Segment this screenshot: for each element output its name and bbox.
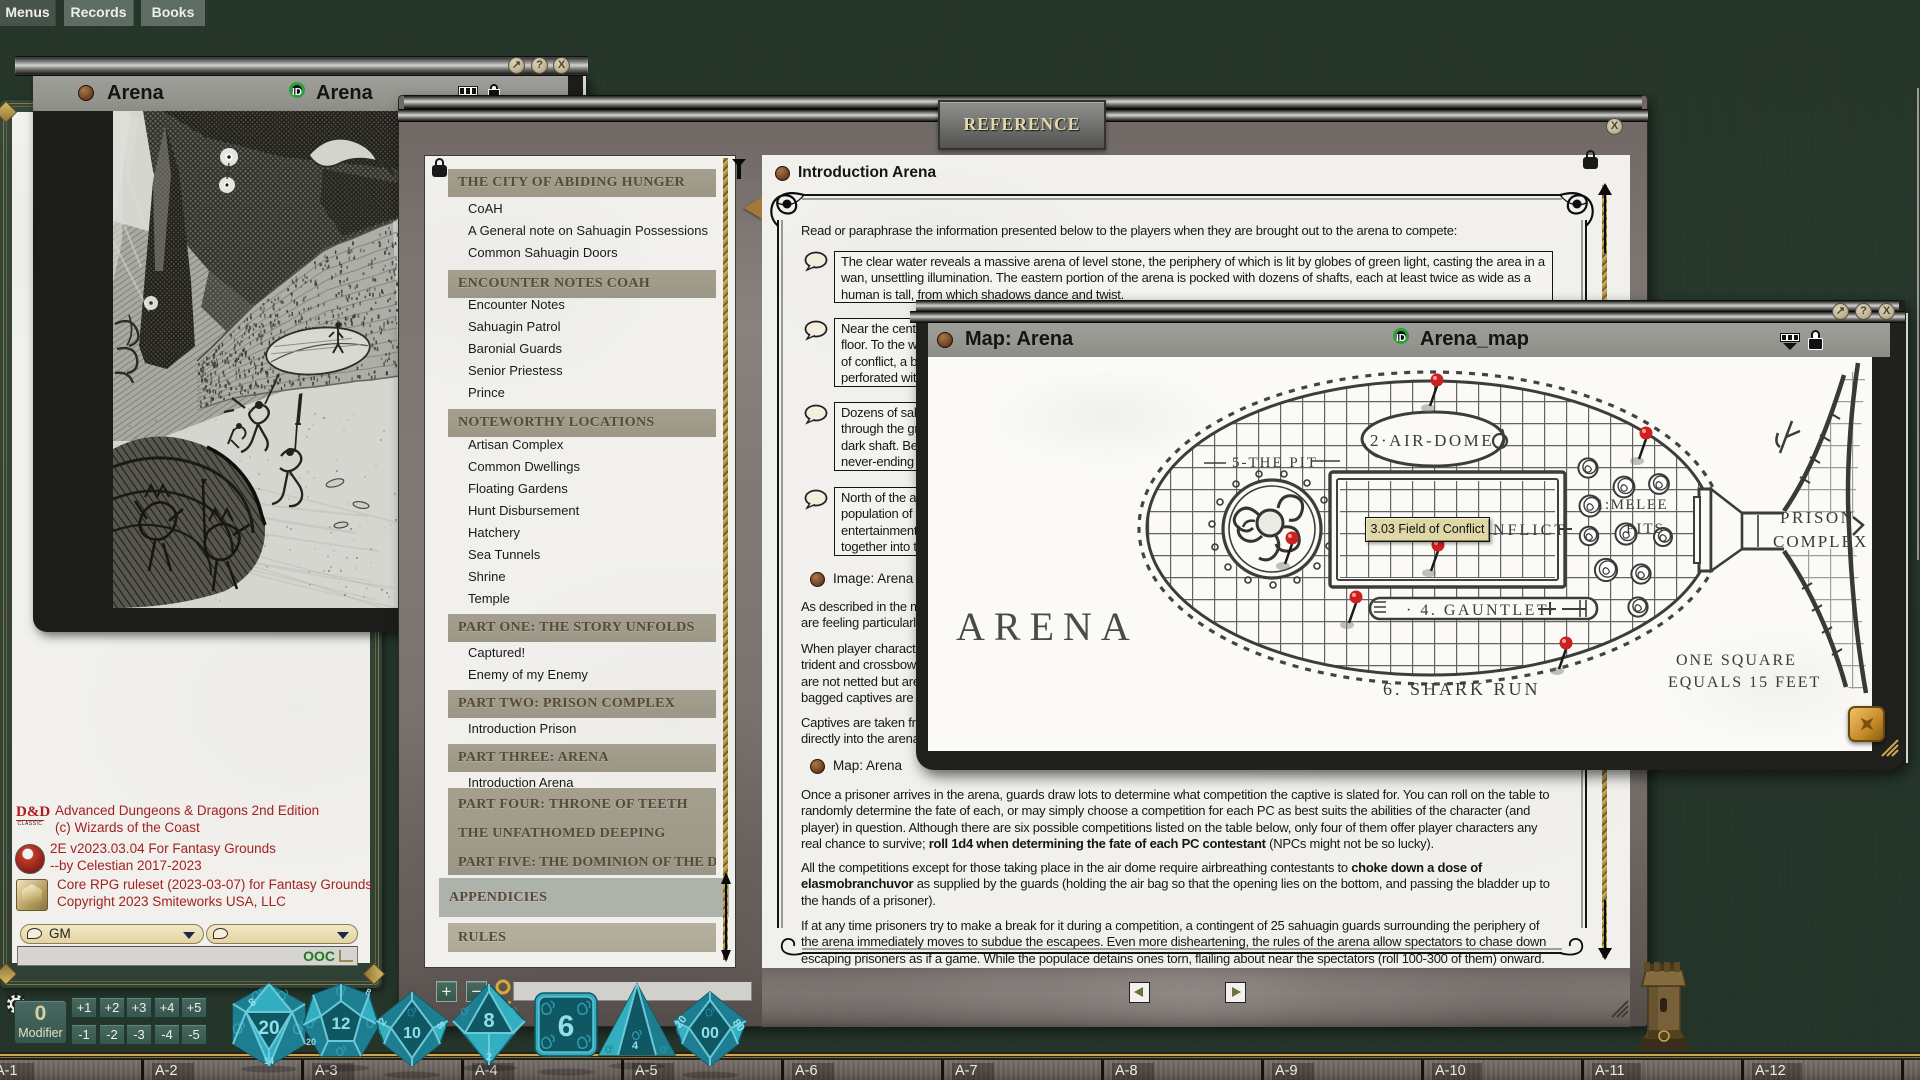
svg-text:ARENA: ARENA [956,604,1139,649]
svg-text:5-THE PIT: 5-THE PIT [1232,455,1318,471]
svg-text:· 4. GAUNTLET·: · 4. GAUNTLET· [1406,602,1557,619]
svg-text:14: 14 [264,1056,274,1066]
svg-text:12: 12 [332,1014,351,1033]
svg-text:COMPLEX: COMPLEX [1773,532,1868,551]
svg-text:20: 20 [258,1018,279,1039]
svg-text:PRISON: PRISON [1780,508,1855,527]
svg-text:8: 8 [483,1010,494,1032]
svg-text:2: 2 [486,1052,492,1063]
svg-text:10: 10 [403,1025,421,1042]
svg-text:00: 00 [701,1025,719,1042]
svg-text:20: 20 [306,1037,316,1047]
svg-text:2·AIR-DOME: 2·AIR-DOME [1370,431,1494,450]
svg-text:6. SHARK RUN: 6. SHARK RUN [1383,679,1541,699]
svg-text:1:MELEE: 1:MELEE [1596,497,1668,513]
svg-text:EQUALS 15 FEET: EQUALS 15 FEET [1668,674,1821,691]
svg-text:PITS: PITS [1626,521,1665,537]
svg-text:6: 6 [558,1010,575,1043]
svg-text:4: 4 [632,1040,639,1052]
svg-text:ONE SQUARE: ONE SQUARE [1676,652,1797,669]
